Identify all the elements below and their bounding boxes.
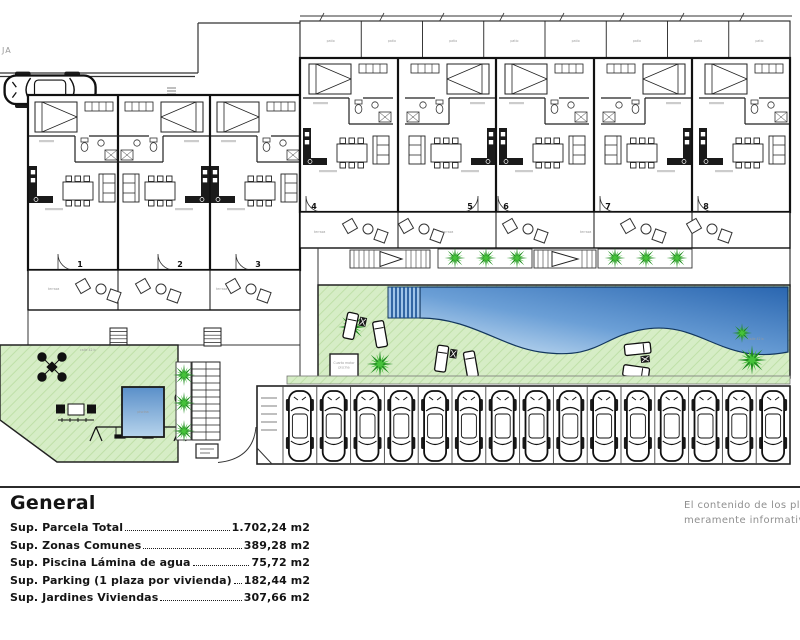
patio-label: patio xyxy=(572,39,580,43)
svg-text:piscina: piscina xyxy=(137,410,148,414)
parked-car xyxy=(725,391,753,461)
terrace-label: terraza xyxy=(48,287,59,291)
legend-row: Sup. Parking (1 plaza por vivienda)182,4… xyxy=(10,574,310,587)
parked-car xyxy=(489,391,517,461)
parked-car xyxy=(455,391,483,461)
terrace-label: terraza xyxy=(442,230,453,234)
patio-label: patio xyxy=(755,39,763,43)
svg-text:piscina: piscina xyxy=(338,366,349,370)
disclaimer-note: El contenido de los pl meramente informa… xyxy=(684,499,800,528)
title-block-divider xyxy=(0,486,800,488)
legend-row: Sup. Jardines Viviendas307,66 m2 xyxy=(10,591,310,604)
patio-label: patio xyxy=(510,39,518,43)
legend-title: General xyxy=(10,492,310,514)
dot-leader xyxy=(160,600,241,601)
dot-leader xyxy=(234,583,242,584)
legend-row: Sup. Zonas Comunes389,28 m2 xyxy=(10,539,310,552)
parked-car xyxy=(523,391,551,461)
terrace-label: terraza xyxy=(216,287,227,291)
parked-car xyxy=(421,391,449,461)
patio-label: patio xyxy=(694,39,702,43)
dot-leader xyxy=(143,548,241,549)
planter-stairs-row xyxy=(350,247,692,269)
parked-car xyxy=(624,391,652,461)
garden-stairs-structure xyxy=(173,362,220,458)
pool-machine-room: Cuarto motor piscina xyxy=(330,354,358,378)
legend-row: Sup. Parcela Total1.702,24 m2 xyxy=(10,521,310,534)
dot-leader xyxy=(125,530,230,531)
parked-car xyxy=(692,391,720,461)
street-curve xyxy=(218,427,256,463)
parked-car xyxy=(658,391,686,461)
left-building-block: 1 2 3 terraza terraza xyxy=(28,95,301,346)
parking-stalls xyxy=(286,386,787,464)
parked-car xyxy=(556,391,584,461)
pool-steps xyxy=(392,287,416,318)
patio-label: patio xyxy=(633,39,641,43)
parked-car xyxy=(759,391,787,461)
street-small-label: calle 42 b xyxy=(748,337,764,341)
dot-leader xyxy=(193,565,250,566)
kids-pool: piscina xyxy=(122,387,164,437)
patio-label: patio xyxy=(327,39,335,43)
svg-text:Cuarto motor: Cuarto motor xyxy=(333,361,355,365)
patio-label: patio xyxy=(388,39,396,43)
dimension-mark xyxy=(167,88,176,94)
parked-car xyxy=(354,391,382,461)
terrace-label: terraza xyxy=(580,230,591,234)
unit-number-3: 3 xyxy=(255,260,261,269)
unit-number-4: 4 xyxy=(311,202,317,211)
communal-garden: piscina calle 42 b xyxy=(0,345,189,462)
unit-number-2: 2 xyxy=(177,260,183,269)
unit-number-7: 7 xyxy=(605,202,611,211)
parked-car xyxy=(590,391,618,461)
right-building-block: patiopatiopatiopatiopatiopatiopatiopatio… xyxy=(300,21,790,248)
unit-number-5: 5 xyxy=(467,202,473,211)
unit-number-6: 6 xyxy=(503,202,509,211)
patio-label: patio xyxy=(449,39,457,43)
street-fragment-label: JA xyxy=(1,46,12,55)
street-small-label: calle 42 b xyxy=(80,348,96,352)
parked-car xyxy=(320,391,348,461)
legend-row: Sup. Piscina Lámina de agua75,72 m2 xyxy=(10,556,310,569)
parking-lot xyxy=(257,376,790,464)
surface-legend: General Sup. Parcela Total1.702,24 m2 Su… xyxy=(10,492,310,604)
pool-garden: Cuarto motor piscina calle 42 b xyxy=(318,285,790,382)
parked-car xyxy=(286,391,314,461)
site-plan-sheet: JA 1 2 3 terraza terraza patiopatiopa xyxy=(0,0,800,640)
parked-car xyxy=(387,391,415,461)
terrace-label: terraza xyxy=(314,230,325,234)
unit-number-1: 1 xyxy=(77,260,83,269)
unit-number-8: 8 xyxy=(703,202,709,211)
site-plan-drawing: JA 1 2 3 terraza terraza patiopatiopa xyxy=(0,0,800,487)
